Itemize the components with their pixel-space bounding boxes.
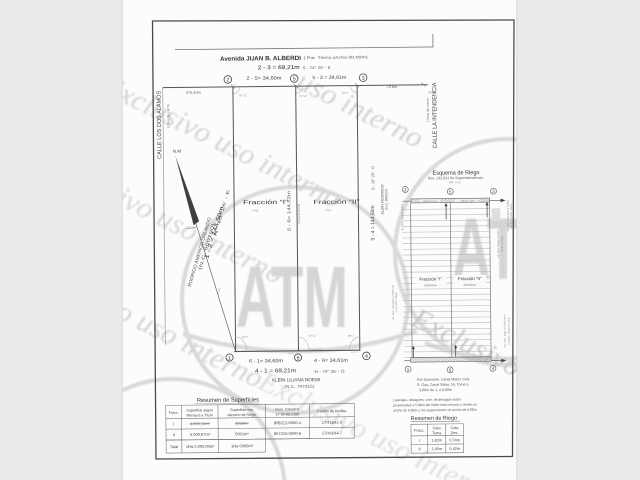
- svg-text:a 0,50m. Riego a 0,01m: a 0,50m. Riego a 0,01m: [507, 317, 511, 345]
- svg-text:6 - 1= 34,60m: 6 - 1= 34,60m: [249, 358, 283, 364]
- svg-text:Definitiva: Definitiva: [424, 283, 437, 287]
- svg-text:1: 1: [228, 355, 231, 361]
- svg-text:Ca. Serv. riego a 3,00m de 4: Ca. Serv. riego a 3,00m de 4: [502, 314, 506, 348]
- svg-text:2 - 3 = 69,21m: 2 - 3 = 69,21m: [258, 65, 300, 71]
- svg-text:II: II: [173, 432, 175, 437]
- svg-text:Fracción “I”: Fracción “I”: [419, 276, 442, 281]
- svg-text:de 3, a 0,50m. Riego: de 3, a 0,50m. Riego: [509, 203, 513, 228]
- svg-text:1,82m: 1,82m: [431, 438, 442, 442]
- svg-text:575,40m: 575,40m: [186, 91, 201, 95]
- svg-text:Superficie con: Superficie con: [230, 408, 253, 412]
- svg-text:riego: riego: [325, 208, 332, 212]
- svg-text:4 - 1 = 69,21m: 4 - 1 = 69,21m: [255, 368, 296, 374]
- svg-text:Fracción “II”: Fracción “II”: [458, 276, 482, 281]
- svg-text:Toma: Toma: [432, 431, 442, 435]
- svg-text:Superficie según: Superficie según: [186, 408, 213, 412]
- svg-text:Cota: Cota: [450, 426, 459, 430]
- svg-text:I: I: [419, 439, 420, 443]
- svg-text:Cota: Cota: [433, 426, 442, 430]
- svg-text:5: 5: [293, 76, 296, 82]
- svg-text:4999m²: 4999m²: [235, 421, 249, 426]
- svg-text:90°12′: 90°12′: [309, 334, 317, 338]
- svg-text:Fracción “I”: Fracción “I”: [243, 200, 288, 206]
- svg-text:4 - 6= 34,61m: 4 - 6= 34,61m: [314, 358, 348, 364]
- svg-text:1Ha 0000m²: 1Ha 0000m²: [231, 443, 254, 448]
- svg-text:N.M: N.M: [173, 149, 181, 154]
- svg-text:Línea de cierre: Línea de cierre: [426, 98, 430, 122]
- svg-text:Línea divisoria: Línea divisoria: [297, 204, 301, 225]
- svg-text:6: 6: [297, 355, 300, 361]
- svg-text:5 - 3 = 34,61m: 5 - 3 = 34,61m: [312, 75, 346, 81]
- svg-text:17-99-00-2100: 17-99-00-2100: [276, 412, 300, 416]
- svg-text:Padrón de Rentas: Padrón de Rentas: [317, 409, 346, 413]
- svg-text:5001m²: 5001m²: [235, 431, 249, 436]
- svg-text:de 3, a 0,50m: de 3, a 0,50m: [500, 236, 504, 252]
- svg-text:Ag. Serv. Riego a 3,00m: Ag. Serv. Riego a 3,00m: [496, 230, 500, 258]
- svg-text:S. Gay, Canal Salas, hij. Toma: S. Gay, Canal Salas, hij. Toma a: [417, 383, 468, 388]
- svg-text:1, a 0,50m. Riego: 1, a 0,50m. Riego: [394, 292, 398, 313]
- svg-text:(N.C. 797215): (N.C. 797215): [284, 384, 315, 389]
- svg-text:Fracc.: Fracc.: [414, 429, 425, 433]
- svg-text:CALLE LA INTENDENCIA: CALLE LA INTENDENCIA: [432, 82, 439, 148]
- svg-text:90°12′: 90°12′: [299, 94, 307, 98]
- svg-text:808212-0000-4: 808212-0000-4: [274, 420, 302, 425]
- svg-text:Río Diamante, Canal Matriz Civ: Río Diamante, Canal Matriz Civit,: [417, 377, 470, 382]
- svg-text:89°7′: 89°7′: [348, 334, 355, 338]
- svg-text:Nom. Catastral: Nom. Catastral: [275, 407, 299, 411]
- svg-text:( Par. Tierra ancho:30,00m): ( Par. Tierra ancho:30,00m): [304, 55, 369, 60]
- svg-text:Laterales, desagües, com. de d: Laterales, desagües, com. de desagüe est…: [393, 397, 461, 402]
- svg-text:S - 74° 26′ - E: S - 74° 26′ - E: [303, 66, 332, 70]
- svg-text:Hijuela Toma: Hijuela Toma: [423, 200, 437, 203]
- svg-text:Total: Total: [170, 444, 179, 449]
- svg-text:S - 16° 26′ - O: S - 16° 26′ - O: [371, 166, 375, 190]
- svg-text:0,42m: 0,42m: [449, 447, 460, 451]
- svg-text:Línea de cierre: Línea de cierre: [166, 104, 170, 128]
- svg-text:3 - 4 = 144,50m: 3 - 4 = 144,50m: [370, 205, 376, 240]
- svg-text:1,45m: 1,45m: [431, 447, 442, 451]
- svg-text:2 - 5= 34,60m: 2 - 5= 34,60m: [246, 75, 281, 81]
- svg-text:derecho de Riego: derecho de Riego: [228, 413, 256, 417]
- svg-text:1Ha 0.000,00m²: 1Ha 0.000,00m²: [186, 444, 215, 449]
- svg-text:(N.C. 885023): (N.C. 885023): [384, 189, 388, 210]
- svg-text:5 - 6= 144,52m: 5 - 6= 144,52m: [286, 191, 291, 232]
- svg-text:II: II: [418, 447, 420, 451]
- svg-text:KLEIN LILIANA NOEMI: KLEIN LILIANA NOEMI: [272, 377, 320, 383]
- svg-text:4: 4: [365, 354, 368, 360]
- svg-text:(0,30): (0,30): [288, 353, 294, 355]
- svg-text:N - 74° 26′ - O: N - 74° 26′ - O: [314, 369, 344, 374]
- svg-text:(SP- exc.): (SP- exc.): [449, 180, 462, 184]
- svg-text:3: 3: [362, 76, 365, 82]
- svg-text:linda abierto: linda abierto: [309, 348, 323, 351]
- svg-text:5.000,87m²: 5.000,87m²: [190, 432, 211, 437]
- svg-text:Mensura y Título: Mensura y Título: [186, 413, 213, 417]
- svg-text:Definitiva: Definitiva: [464, 283, 477, 287]
- svg-text:Hijuela Toma: Hijuela Toma: [461, 199, 475, 202]
- svg-text:17/41644-7: 17/41644-7: [322, 430, 343, 435]
- svg-text:Des.: Des.: [451, 431, 459, 435]
- svg-text:4.999,13m²: 4.999,13m²: [190, 421, 211, 426]
- svg-text:70,8m: 70,8m: [387, 85, 398, 89]
- svg-text:Fracción “II”: Fracción “II”: [313, 200, 359, 206]
- svg-text:I: I: [173, 421, 174, 426]
- svg-text:90°12′: 90°12′: [239, 93, 247, 97]
- svg-text:17/41641-3: 17/41641-3: [322, 420, 343, 425]
- svg-text:riego: riego: [253, 208, 260, 212]
- svg-text:2: 2: [226, 77, 229, 83]
- svg-text:90°2′: 90°2′: [242, 335, 249, 339]
- svg-text:3,00m de 1, a 0,90m: 3,00m de 1, a 0,90m: [419, 388, 452, 392]
- svg-text:CALLE LOS DOS ALAMOS: CALLE LOS DOS ALAMOS: [157, 91, 164, 159]
- svg-text:89°7′: 89°7′: [342, 91, 349, 95]
- svg-text:Ac. Serv. riego a 0,80m: Ac. Serv. riego a 0,80m: [400, 204, 404, 231]
- svg-text:807215-0000-6: 807215-0000-6: [274, 431, 302, 436]
- svg-text:Avenida JUAN B. ALBERDI: Avenida JUAN B. ALBERDI: [220, 55, 301, 63]
- svg-text:Fracc.: Fracc.: [169, 411, 179, 415]
- svg-text:0,74m: 0,74m: [449, 438, 460, 442]
